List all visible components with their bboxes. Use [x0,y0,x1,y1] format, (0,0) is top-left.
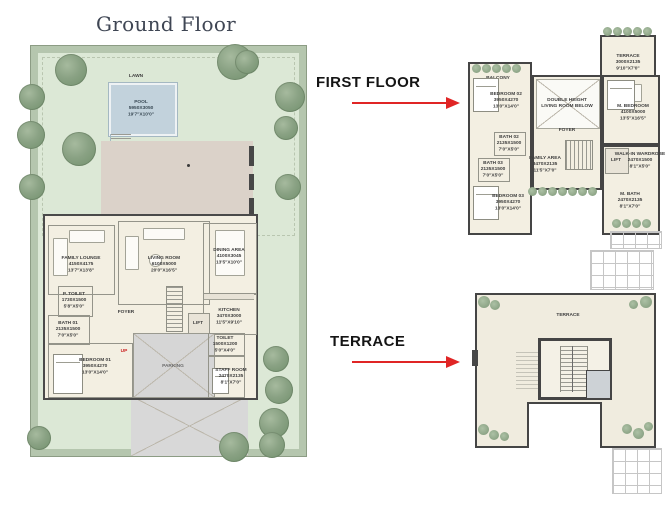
shrub-icon [478,424,489,435]
shrub-icon [490,300,500,310]
terrace-notch [527,402,602,448]
shrub-icon [588,187,597,196]
ground-floor-plan: LAWN POOL 5950X3050 19'7"X10'0" FAMILY L… [30,45,307,457]
shrub-icon [472,64,481,73]
shrub-icon [644,422,653,431]
room-p-toilet [58,286,93,317]
wall-segment [472,350,478,366]
shrub-icon [538,187,547,196]
tree-icon [275,174,301,200]
deck-area [101,141,253,214]
shrub-icon [492,64,501,73]
room-ff-lift [605,148,629,174]
room-bath-01 [48,315,90,345]
bed [212,368,229,394]
pergola-grid [590,250,654,290]
shrub-icon [640,296,652,308]
page-title: Ground Floor [96,12,236,36]
shrub-icon [528,187,537,196]
wall-segment [249,174,254,190]
house-footprint: FAMILY LOUNGE 4150X4175 13'7"X13'8" LIVI… [43,214,258,400]
shrub-icon [548,187,557,196]
shrub-icon [642,219,651,228]
tree-icon [235,50,259,74]
first-floor-arrow [352,102,448,104]
room-toilet [208,333,245,357]
bed [473,186,499,220]
tree-icon [259,432,285,458]
tree-icon [55,54,87,86]
first-floor-arrow-head [446,97,460,109]
tree-icon [219,432,249,462]
terrace-pergola-grid [612,448,662,494]
bed [473,78,499,112]
wall-segment [249,146,254,166]
terrace-section-label: TERRACE [330,333,405,350]
first-floor-plan: TERRACE 3000X2135 9'10"X7'0" DOUBLE HEIG… [466,18,666,248]
room-lift [188,313,210,335]
ff-balcony-railing-grid [610,231,662,249]
shrub-icon [489,430,499,440]
terrace-plan: TERRACE [472,290,664,505]
pool-area [109,83,177,136]
shrub-icon [512,64,521,73]
shrub-icon [612,219,621,228]
tree-icon [27,426,51,450]
shrub-icon [568,187,577,196]
terrace-arrow-head [446,356,460,368]
parking-area [133,333,215,398]
shrub-icon [633,428,644,439]
tree-icon [19,84,45,110]
terrace-arrow [352,361,448,363]
shrub-icon [478,296,490,308]
shrub-icon [613,27,622,36]
coffee-table [149,254,162,267]
room-bath-03 [478,158,510,182]
stair-divider [572,346,573,392]
shrub-icon [643,27,652,36]
tree-icon [263,346,289,372]
shrub-icon [623,27,632,36]
first-floor-section-label: FIRST FLOOR [316,74,420,91]
sofa [143,228,185,240]
kitchen-counter [204,294,254,300]
shrub-icon [633,27,642,36]
tree-icon [275,82,305,112]
ff-staircase [565,140,593,170]
staircase [166,286,183,332]
terrace-staircase [560,346,588,392]
shrub-icon [622,219,631,228]
tree-icon [17,121,45,149]
dining-table [215,230,245,276]
tree-icon [19,174,45,200]
terrace-service-room [586,370,611,399]
tree-icon [62,132,96,166]
bed [53,354,83,394]
deck-column [187,164,190,167]
shrub-icon [502,64,511,73]
tree-icon [274,116,298,140]
shrub-icon [558,187,567,196]
sofa [53,238,68,276]
stair-landing-lines [516,352,538,392]
shrub-icon [622,424,632,434]
shrub-icon [629,300,638,309]
shrub-icon [578,187,587,196]
shrub-icon [603,27,612,36]
shrub-icon [632,219,641,228]
shrub-icon [482,64,491,73]
room-bath-02 [494,132,526,156]
sofa [125,236,139,270]
tree-icon [265,376,293,404]
double-height-void [536,79,600,129]
label-foyer: FOYER [90,309,162,315]
shrub-icon [500,432,509,441]
bed [607,80,635,110]
sofa [69,230,105,243]
